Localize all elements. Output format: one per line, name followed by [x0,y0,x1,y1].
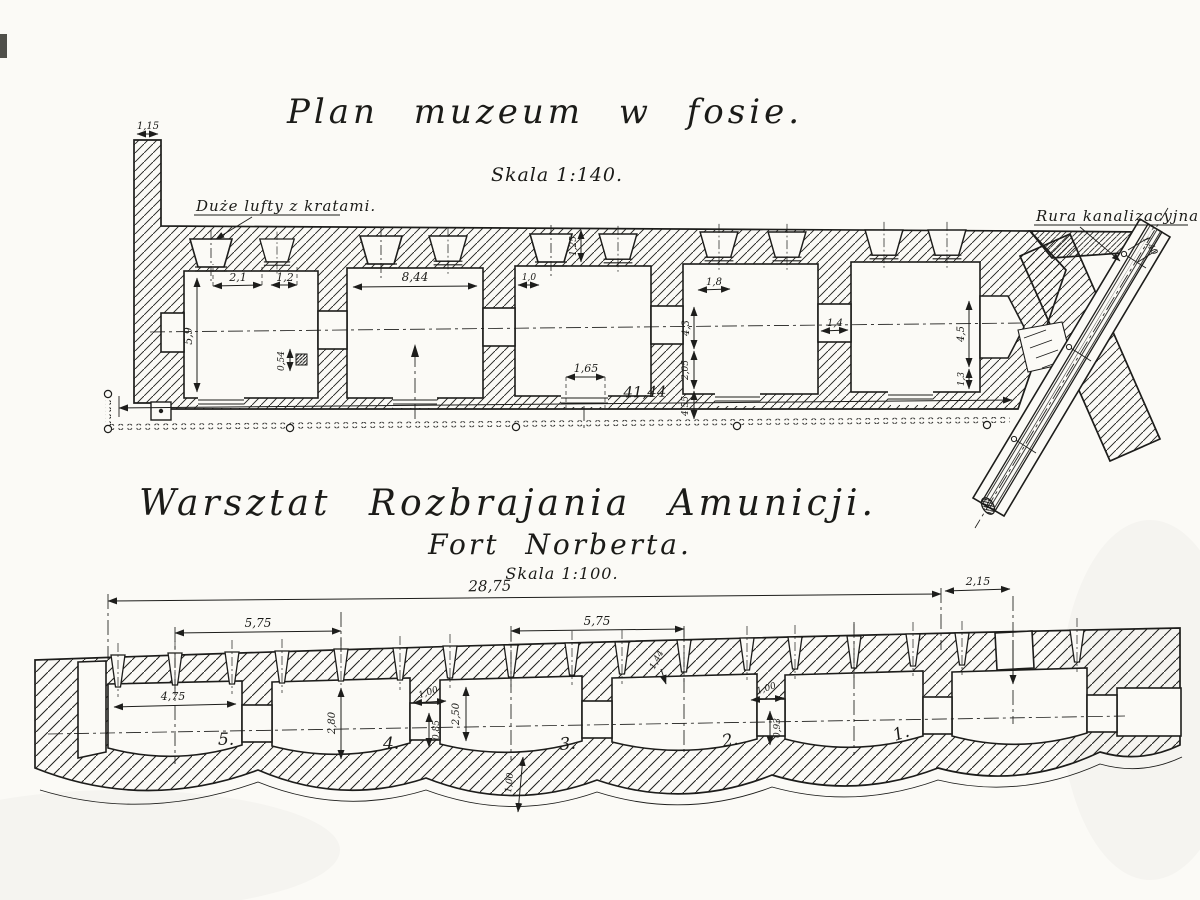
top-plan-scale: Skala 1:140. [491,164,623,186]
pipe-label: Rura kanalizacyjna. [1035,207,1200,225]
passage-3-4 [651,306,683,344]
bottom-plan-scale: Skala 1:100. [505,564,618,583]
dim-vent-h: 1,25 [569,236,579,256]
dim-room2-w: 8,44 [402,270,429,284]
w-room-right-partial [1117,688,1181,736]
dim-span-b: 5,75 [584,614,611,628]
room-number-5: 5. [218,730,234,750]
dim-wall-top: 1,15 [137,121,159,132]
bottom-plan-subtitle: Fort Norberta. [427,528,692,561]
room-1 [184,271,318,398]
plan-drawing: 1,40 1,15 2,1 [0,0,1200,900]
dim-room1-h: 5,9 [182,327,195,345]
dim-span-a: 5,75 [245,616,272,630]
top-plan-title: Plan muzeum w fosie. [286,92,803,132]
room-number-2: 2. [719,729,739,752]
room-number-3: 3. [559,734,577,755]
dim-pass43-h: 0,85 [432,720,442,740]
dim-room1-a: 2,1 [228,271,247,284]
vents-label: Duże lufty z kratami. [195,197,376,215]
dim-pass21-h: 0,93 [773,718,783,738]
dim-room4-h: 2,80 [327,711,338,735]
passage-left [161,313,184,352]
bottom-plan-title: Warsztat Rozbrajania Amunicji. [139,483,877,524]
dim-room3-h: 2,50 [451,702,462,726]
dim-room1-b: 1,2 [276,271,294,284]
dim-room5-a: 4,5 [956,326,967,343]
dim-room5-w: 4,75 [160,690,186,703]
dim-niche: 0,54 [277,351,287,371]
niche [296,354,307,365]
scan-edge-mark [0,34,7,58]
dim-floor: 1,00 [504,772,516,793]
dim-room4-t: 1,8 [706,277,722,288]
scanned-plan-sheet: 1,40 1,15 2,1 [0,0,1200,900]
room-4 [683,264,818,394]
dim-pass45: 1,4 [827,318,843,329]
dim-wall34-c: 4,55 [681,396,691,417]
dim-wall34-b: 2,05 [681,360,691,381]
room-number-4: 4. [382,734,399,754]
dim-entry: 2,15 [965,575,991,588]
w-room-entry [952,668,1087,744]
w-passage-1-entry [923,697,952,734]
w-left-opening [78,661,106,758]
dim-door: 1,65 [574,362,599,375]
w-passage-5-4 [242,705,272,742]
w-passage-entry-right [1087,695,1117,732]
w-passage-3-2 [582,701,612,738]
passage-2-3 [483,308,515,346]
dim-total-top: 41,44 [622,383,666,402]
dim-room5-b: 1,3 [957,372,967,387]
dim-wall34-a: 4,3 [681,320,692,337]
dim-room3-t: 1,0 [522,273,537,283]
corner-post [151,402,171,420]
